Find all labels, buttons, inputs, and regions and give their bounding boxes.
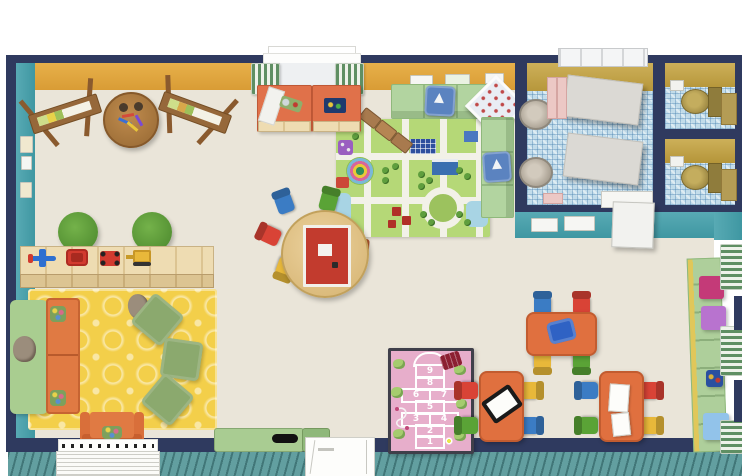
toy-tablet: [324, 98, 346, 113]
toy-shelf-front: [20, 274, 214, 288]
rug-building: [464, 131, 478, 142]
wall-sign: [564, 216, 595, 231]
bathroom-door[interactable]: [611, 201, 655, 248]
kids-chair-green[interactable]: [459, 417, 478, 434]
stall-cabinet[interactable]: [721, 93, 737, 125]
game-piece: [332, 262, 338, 268]
window-blinds[interactable]: [56, 451, 160, 476]
easel-board: [28, 93, 103, 134]
light-switch[interactable]: [531, 218, 558, 232]
toilet-tank: [708, 163, 722, 193]
cabinet-front: [313, 121, 360, 132]
rug-house: [402, 216, 411, 225]
paint-jar: [134, 102, 143, 111]
toilet-paper-holder: [670, 80, 684, 91]
purple-toy[interactable]: [338, 140, 353, 155]
wall-right-stub: [734, 380, 742, 422]
paint-jar: [119, 103, 128, 112]
rug-building: [432, 159, 458, 175]
kids-table[interactable]: [479, 371, 524, 442]
changing-partition[interactable]: [563, 133, 644, 186]
teddy-bear[interactable]: [13, 336, 36, 362]
hopscotch-cell: 1: [415, 435, 445, 449]
toilet-tank: [708, 87, 722, 117]
toy-digger[interactable]: [126, 248, 154, 267]
kids-chair-blue[interactable]: [579, 382, 598, 399]
toilet[interactable]: [681, 165, 710, 190]
exit-door[interactable]: [305, 437, 375, 476]
wall-right-stub: [734, 296, 742, 330]
worksheet: [608, 383, 630, 412]
game-board-house: [318, 244, 332, 256]
stall-divider-wall: [665, 129, 742, 139]
door-label: [318, 448, 334, 451]
bench-handle: [272, 434, 298, 443]
toilet[interactable]: [681, 89, 710, 114]
red-toy[interactable]: [336, 177, 349, 188]
nautical-cushion[interactable]: [424, 85, 456, 117]
flower-icon: [445, 437, 453, 445]
toy-car[interactable]: [66, 249, 88, 266]
nautical-cushion[interactable]: [482, 151, 512, 183]
game-board: [303, 225, 351, 287]
wall-corner-face: [714, 212, 742, 240]
stall-divider-wall: [653, 55, 665, 205]
changing-cabinet-2[interactable]: [312, 85, 361, 132]
crayon: [122, 113, 134, 118]
rug-park: [346, 157, 374, 185]
window-curtain-icon: [720, 420, 742, 454]
bathroom: [515, 55, 742, 212]
baby-toy: [279, 95, 304, 113]
hopscotch-rug[interactable]: 9 8 6 7 5 3 4 2 1: [388, 348, 474, 454]
curtain-hooks: [62, 444, 154, 448]
wall-poster: [20, 136, 33, 153]
rug-house: [392, 207, 401, 216]
flower-pillow: [102, 426, 122, 439]
tablet[interactable]: [481, 384, 524, 425]
worksheet: [611, 412, 631, 437]
wall-poster: [20, 182, 32, 198]
window-curtain-icon: [720, 326, 742, 376]
rug-house: [388, 220, 396, 228]
kids-table[interactable]: [599, 371, 644, 442]
washroom-bench[interactable]: [557, 77, 567, 119]
kids-table[interactable]: [526, 312, 597, 356]
kids-chair-green[interactable]: [579, 417, 598, 434]
top-window-glass: [278, 63, 340, 86]
crayon: [127, 121, 139, 132]
kids-chair-red[interactable]: [459, 382, 478, 399]
cushion-on-table: [546, 317, 578, 345]
wall-poster: [21, 156, 32, 170]
window-curtain-icon: [720, 244, 742, 290]
sink[interactable]: [519, 157, 553, 188]
floorplan-canvas: 9 8 6 7 5 3 4 2 1: [0, 0, 742, 476]
flower-pillow: [50, 390, 66, 406]
easel-paper: [37, 101, 92, 127]
washroom-bench[interactable]: [543, 193, 563, 204]
flower-pillow: [50, 306, 66, 322]
round-activity-table[interactable]: [281, 210, 369, 298]
changing-cabinet-1[interactable]: [257, 85, 312, 132]
washroom-bench[interactable]: [547, 77, 557, 119]
stall-cabinet[interactable]: [721, 169, 737, 201]
toy-airplane[interactable]: [28, 248, 58, 268]
skylight[interactable]: [558, 48, 648, 67]
crayon: [135, 115, 144, 127]
toy-quad[interactable]: [100, 251, 120, 266]
jump-rope-icon: [393, 403, 413, 433]
easel-paper: [167, 98, 222, 125]
toilet-paper-holder: [670, 156, 684, 167]
